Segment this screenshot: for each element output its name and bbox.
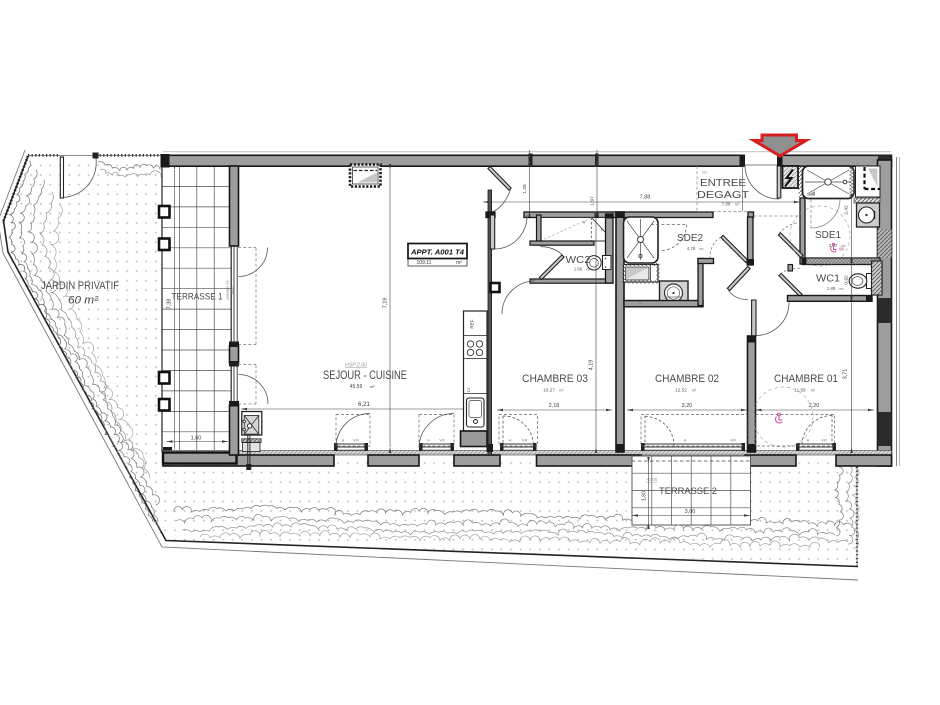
svg-text:7,19: 7,19 [383,298,389,309]
svg-text:2,20: 2,20 [809,403,820,409]
svg-text:TERRASSE 2: TERRASSE 2 [659,486,717,496]
svg-text:2,18: 2,18 [549,403,560,409]
svg-text:V.R: V.R [439,439,445,443]
svg-text:60 m²: 60 m² [68,295,98,307]
svg-text:3,71: 3,71 [843,369,849,380]
svg-text:V.R: V.R [821,439,827,443]
svg-text:90cm: 90cm [231,286,235,295]
svg-text:7,88: 7,88 [640,195,651,201]
svg-text:DEGAGT: DEGAGT [697,189,750,201]
svg-text:V.R: V.R [353,439,359,443]
svg-text:1,28: 1,28 [522,184,528,194]
svg-text:7.88: 7.88 [722,202,731,207]
svg-text:6,21: 6,21 [358,402,370,408]
svg-text:D+: D+ [702,170,708,175]
svg-text:1,97: 1,97 [590,196,596,206]
svg-text:passage vis: passage vis [226,280,230,299]
svg-text:1,60: 1,60 [191,436,202,442]
svg-text:m²: m² [370,384,375,389]
svg-text:109.11: 109.11 [417,260,432,266]
svg-text:4.78: 4.78 [687,246,696,251]
svg-text:H: H [601,228,604,232]
svg-text:WC2: WC2 [566,255,591,266]
svg-text:LV: LV [466,387,471,392]
svg-text:45.59: 45.59 [350,384,363,390]
svg-text:SDE2: SDE2 [677,233,703,244]
svg-text:7,38: 7,38 [167,299,173,310]
svg-text:1.88: 1.88 [827,286,836,291]
svg-text:CHAMBRE 01: CHAMBRE 01 [774,373,838,385]
svg-text:m²: m² [456,260,462,266]
svg-text:4,19: 4,19 [589,360,595,371]
svg-text:R: R [583,221,586,225]
svg-text:TERRASSE 1: TERRASSE 1 [172,292,223,303]
svg-text:11.59: 11.59 [794,388,806,393]
svg-text:ENTREE: ENTREE [700,177,746,189]
svg-text:V.R: V.R [522,439,528,443]
svg-text:SEJOUR - CUISINE: SEJOUR - CUISINE [323,368,407,382]
svg-text:CHAMBRE 03: CHAMBRE 03 [522,373,588,385]
svg-text:+0.00: +0.00 [646,477,658,482]
svg-text:CHAMBRE 02: CHAMBRE 02 [655,373,719,385]
svg-text:WC1: WC1 [816,274,840,285]
svg-text:REF: REF [470,319,475,328]
svg-text:1,80: 1,80 [642,491,648,501]
svg-text:APPT. A001 T4: APPT. A001 T4 [410,248,465,257]
svg-text:JARDIN PRIVATIF: JARDIN PRIVATIF [41,280,119,292]
svg-text:0,92: 0,92 [844,275,850,285]
svg-text:V.R: V.R [730,439,736,443]
svg-text:m²: m² [735,203,740,207]
svg-text:PL: PL [638,301,643,305]
svg-text:10.27: 10.27 [543,388,555,393]
svg-text:3,00: 3,00 [685,509,696,515]
svg-text:12.52: 12.52 [675,388,687,393]
svg-text:SDE1: SDE1 [815,230,841,241]
svg-text:98: 98 [839,247,844,252]
svg-text:1.66: 1.66 [574,267,583,272]
svg-text:2,42: 2,42 [844,205,850,215]
svg-text:3,20: 3,20 [682,403,693,409]
